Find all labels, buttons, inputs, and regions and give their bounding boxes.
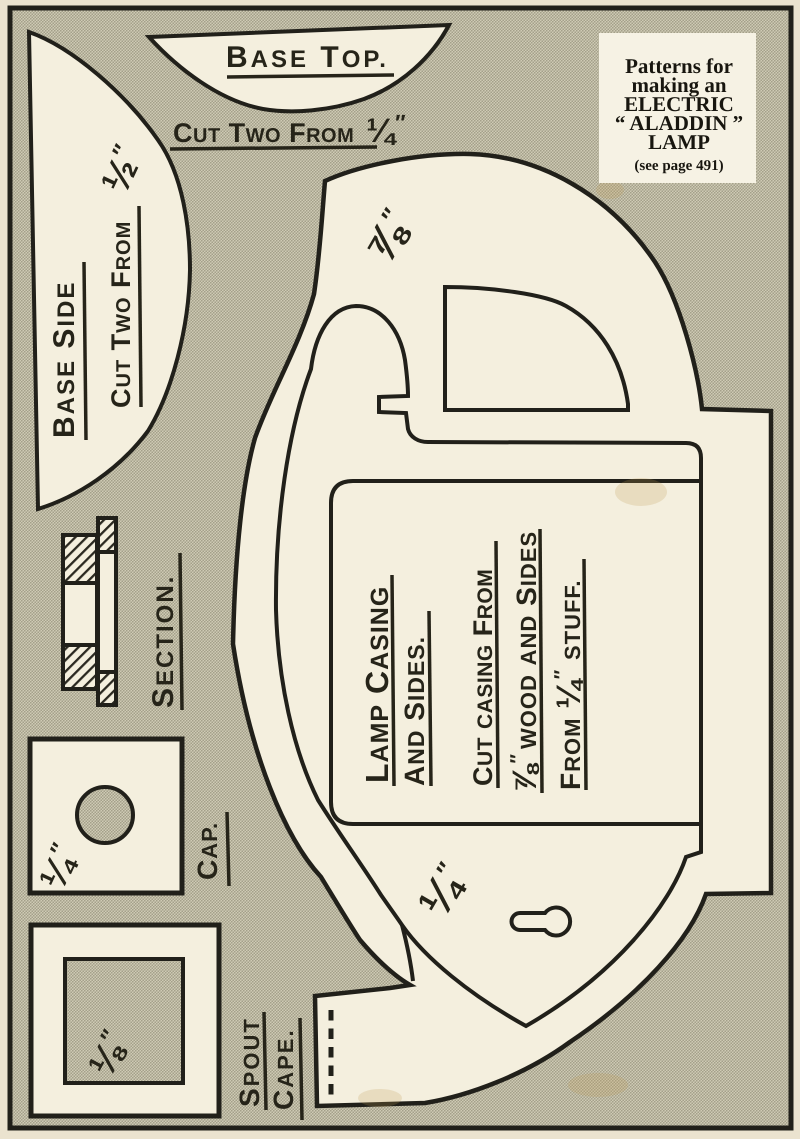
svg-text:LAMP: LAMP — [648, 130, 710, 154]
svg-text:CAPE.: CAPE. — [268, 1028, 299, 1110]
svg-text:(see page 491): (see page 491) — [634, 158, 723, 174]
svg-text:SPOUT: SPOUT — [234, 1017, 265, 1107]
svg-text:CAP.: CAP. — [192, 822, 223, 880]
svg-text:SECTION.: SECTION. — [147, 575, 180, 708]
svg-text:AND SIDES.: AND SIDES. — [399, 636, 430, 786]
svg-text:BASE TOP.: BASE TOP. — [226, 41, 389, 74]
svg-text:BASE SIDE: BASE SIDE — [48, 281, 81, 438]
